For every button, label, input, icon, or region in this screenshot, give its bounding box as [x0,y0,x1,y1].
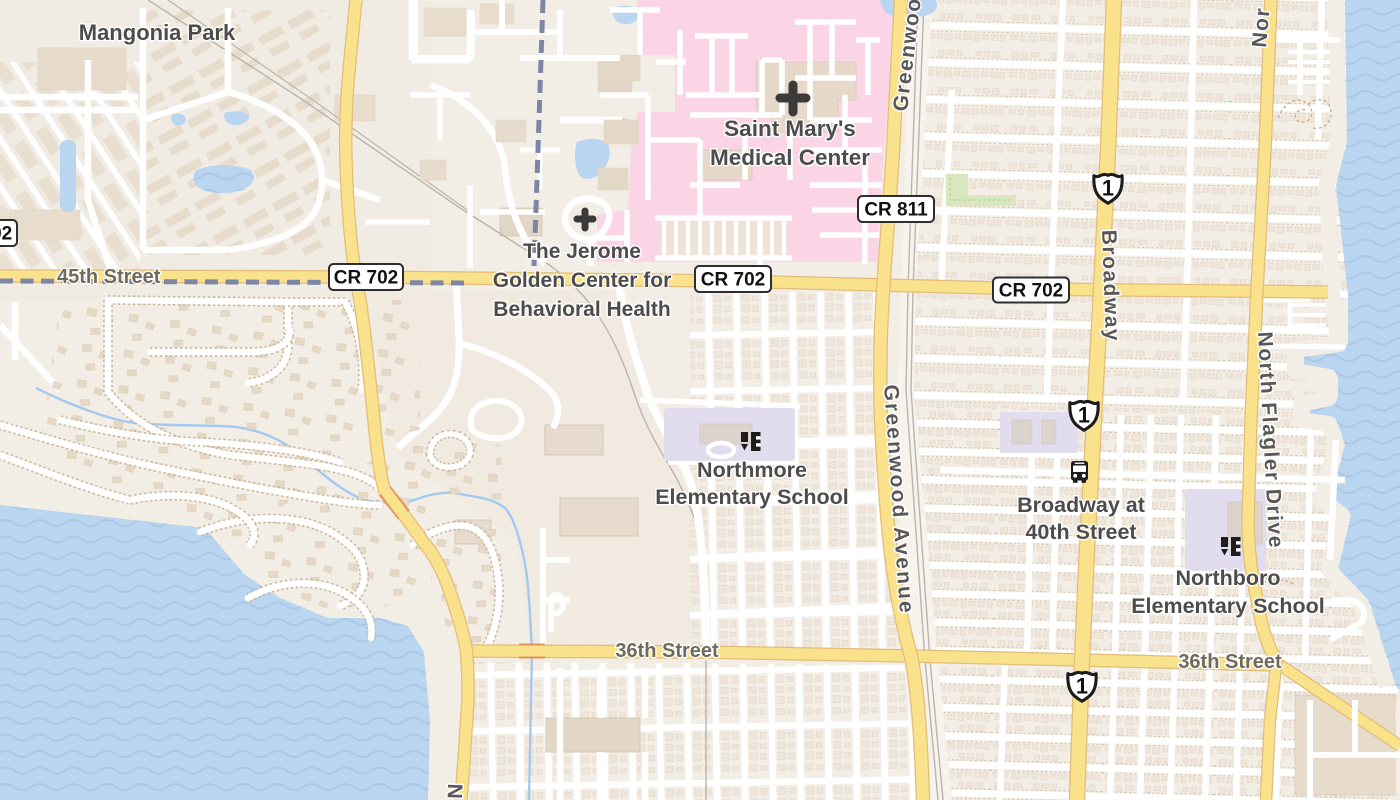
svg-text:36th Street: 36th Street [615,640,719,662]
svg-text:1: 1 [1102,176,1114,201]
svg-text:Elementary School: Elementary School [655,485,849,509]
svg-text:CR 702: CR 702 [999,281,1063,302]
svg-text:Golden Center for: Golden Center for [493,269,672,292]
svg-text:Northboro: Northboro [1175,566,1280,590]
svg-text:CR 702: CR 702 [701,270,765,291]
svg-text:36th Street: 36th Street [1178,651,1282,673]
svg-text:45th Street: 45th Street [57,266,161,288]
svg-text:Broadway: Broadway [1097,229,1124,342]
svg-text:CR 702: CR 702 [334,268,398,289]
svg-text:The Jerome: The Jerome [523,240,641,263]
svg-text:1: 1 [1078,403,1090,428]
svg-text:Saint Mary's: Saint Mary's [724,116,856,141]
svg-text:CR 811: CR 811 [864,200,928,221]
svg-text:CR 702: CR 702 [0,224,12,245]
svg-text:1: 1 [1076,674,1088,699]
svg-text:Mangonia Park: Mangonia Park [79,20,236,45]
svg-text:Nor: Nor [1248,6,1274,49]
svg-text:Broadway at: Broadway at [1017,493,1145,517]
svg-text:Northmore: Northmore [697,458,807,482]
svg-text:40th Street: 40th Street [1025,520,1136,544]
svg-text:Behavioral Health: Behavioral Health [493,298,670,321]
svg-text:Elementary School: Elementary School [1131,594,1325,618]
svg-text:N: N [444,782,468,799]
svg-text:Medical Center: Medical Center [710,145,870,170]
